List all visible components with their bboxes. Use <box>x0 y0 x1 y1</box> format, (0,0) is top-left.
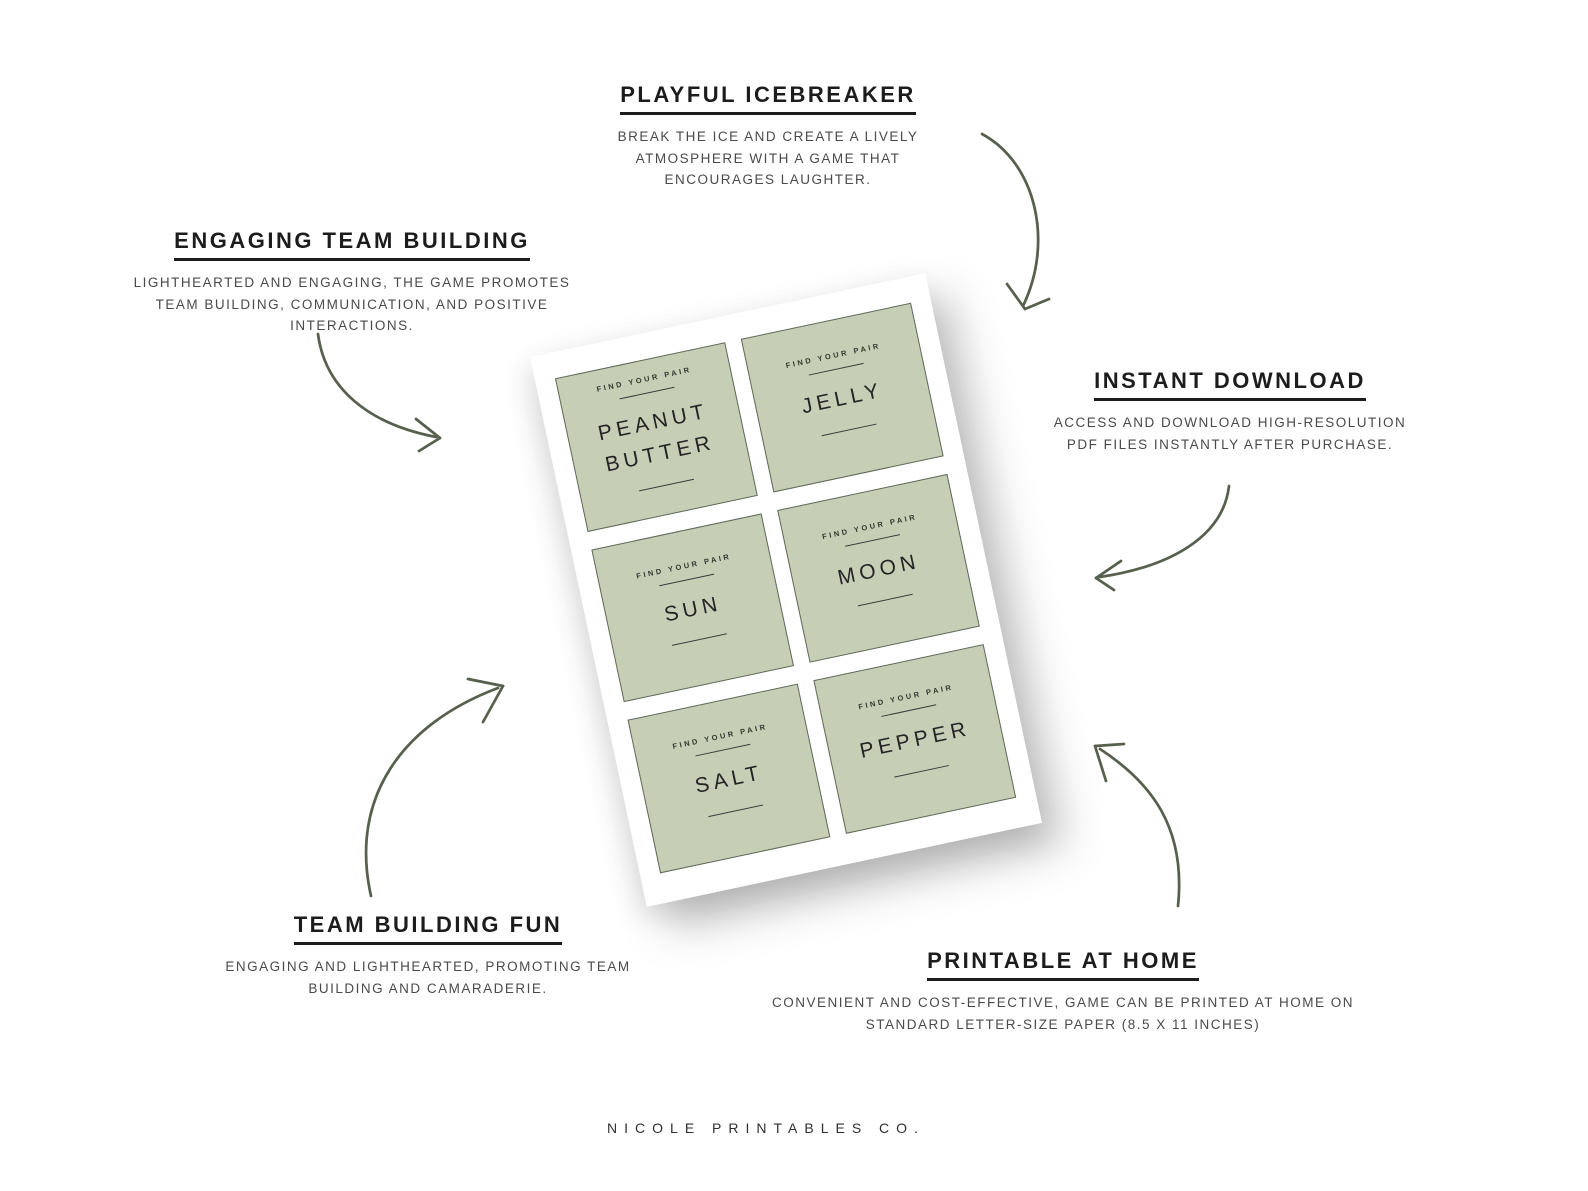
card-word: SUN <box>615 578 770 641</box>
product-infographic: PLAYFUL ICEBREAKER BREAK THE ICE AND CRE… <box>0 0 1588 1191</box>
curved-arrow-icon-bottom-left <box>366 679 503 896</box>
card-word: SALT <box>652 749 807 812</box>
card-word: PEPPER <box>838 709 993 772</box>
card-divider <box>619 387 674 400</box>
feature-instant-download: INSTANT DOWNLOAD ACCESS AND DOWNLOAD HIG… <box>1010 368 1450 455</box>
pair-card-moon: FIND YOUR PAIR MOON <box>777 474 980 663</box>
card-divider <box>822 423 877 436</box>
pair-card-peanut-butter: FIND YOUR PAIR PEANUT BUTTER <box>555 342 758 531</box>
curved-arrow-icon-left <box>318 334 440 451</box>
card-label: FIND YOUR PAIR <box>785 341 882 370</box>
card-divider <box>881 705 936 718</box>
card-label: FIND YOUR PAIR <box>672 722 769 751</box>
printable-sheet-preview: FIND YOUR PAIR PEANUT BUTTER FIND YOUR P… <box>530 273 1042 907</box>
card-label: FIND YOUR PAIR <box>635 551 732 580</box>
feature-title: ENGAGING TEAM BUILDING <box>174 228 530 261</box>
feature-engaging-team-building: ENGAGING TEAM BUILDING LIGHTHEARTED AND … <box>102 228 602 337</box>
card-word: MOON <box>801 539 956 602</box>
pair-card-pepper: FIND YOUR PAIR PEPPER <box>813 644 1016 833</box>
feature-title: INSTANT DOWNLOAD <box>1094 368 1366 401</box>
card-label: FIND YOUR PAIR <box>596 365 693 394</box>
feature-playful-icebreaker: PLAYFUL ICEBREAKER BREAK THE ICE AND CRE… <box>543 82 993 191</box>
feature-printable-at-home: PRINTABLE AT HOME CONVENIENT AND COST-EF… <box>743 948 1383 1035</box>
card-divider <box>672 634 727 647</box>
feature-body: ENGAGING AND LIGHTHEARTED, PROMOTING TEA… <box>223 956 633 999</box>
feature-title: PLAYFUL ICEBREAKER <box>620 82 916 115</box>
card-divider <box>845 534 900 547</box>
pair-card-salt: FIND YOUR PAIR SALT <box>628 684 831 873</box>
card-label: FIND YOUR PAIR <box>858 683 955 712</box>
card-label: FIND YOUR PAIR <box>821 512 918 541</box>
pair-card-jelly: FIND YOUR PAIR JELLY <box>741 303 944 492</box>
feature-body: CONVENIENT AND COST-EFFECTIVE, GAME CAN … <box>771 992 1356 1035</box>
card-word: PEANUT BUTTER <box>576 391 738 486</box>
brand-footer: NICOLE PRINTABLES CO. <box>466 1120 1066 1136</box>
card-divider <box>659 573 714 586</box>
feature-team-building-fun: TEAM BUILDING FUN ENGAGING AND LIGHTHEAR… <box>178 912 678 999</box>
feature-title: TEAM BUILDING FUN <box>294 912 563 945</box>
feature-body: LIGHTHEARTED AND ENGAGING, THE GAME PROM… <box>132 272 572 337</box>
feature-body: ACCESS AND DOWNLOAD HIGH-RESOLUTION PDF … <box>1043 412 1418 455</box>
pair-card-sun: FIND YOUR PAIR SUN <box>591 513 794 702</box>
card-divider <box>858 594 913 607</box>
feature-body: BREAK THE ICE AND CREATE A LIVELY ATMOSP… <box>583 126 953 191</box>
card-divider <box>809 363 864 376</box>
card-divider <box>708 804 763 817</box>
card-word: JELLY <box>765 368 920 431</box>
card-divider <box>696 744 751 757</box>
card-divider <box>639 479 694 492</box>
curved-arrow-icon-bottom-right <box>1095 744 1179 906</box>
feature-title: PRINTABLE AT HOME <box>927 948 1199 981</box>
card-divider <box>894 765 949 778</box>
curved-arrow-icon-right <box>1096 486 1229 590</box>
